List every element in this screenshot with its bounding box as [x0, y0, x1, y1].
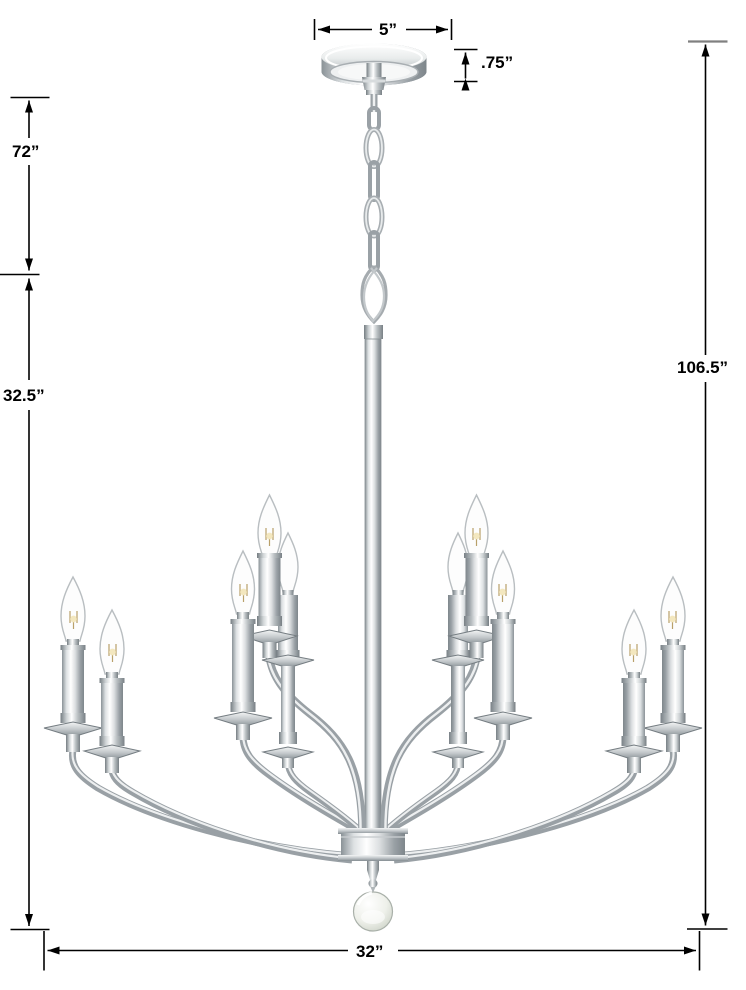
- svg-text:32.5”: 32.5”: [3, 386, 45, 405]
- svg-text:32”: 32”: [356, 942, 383, 961]
- svg-text:72”: 72”: [12, 142, 39, 161]
- svg-text:106.5”: 106.5”: [677, 358, 728, 377]
- svg-text:.75”: .75”: [481, 53, 513, 72]
- svg-text:5”: 5”: [379, 20, 397, 39]
